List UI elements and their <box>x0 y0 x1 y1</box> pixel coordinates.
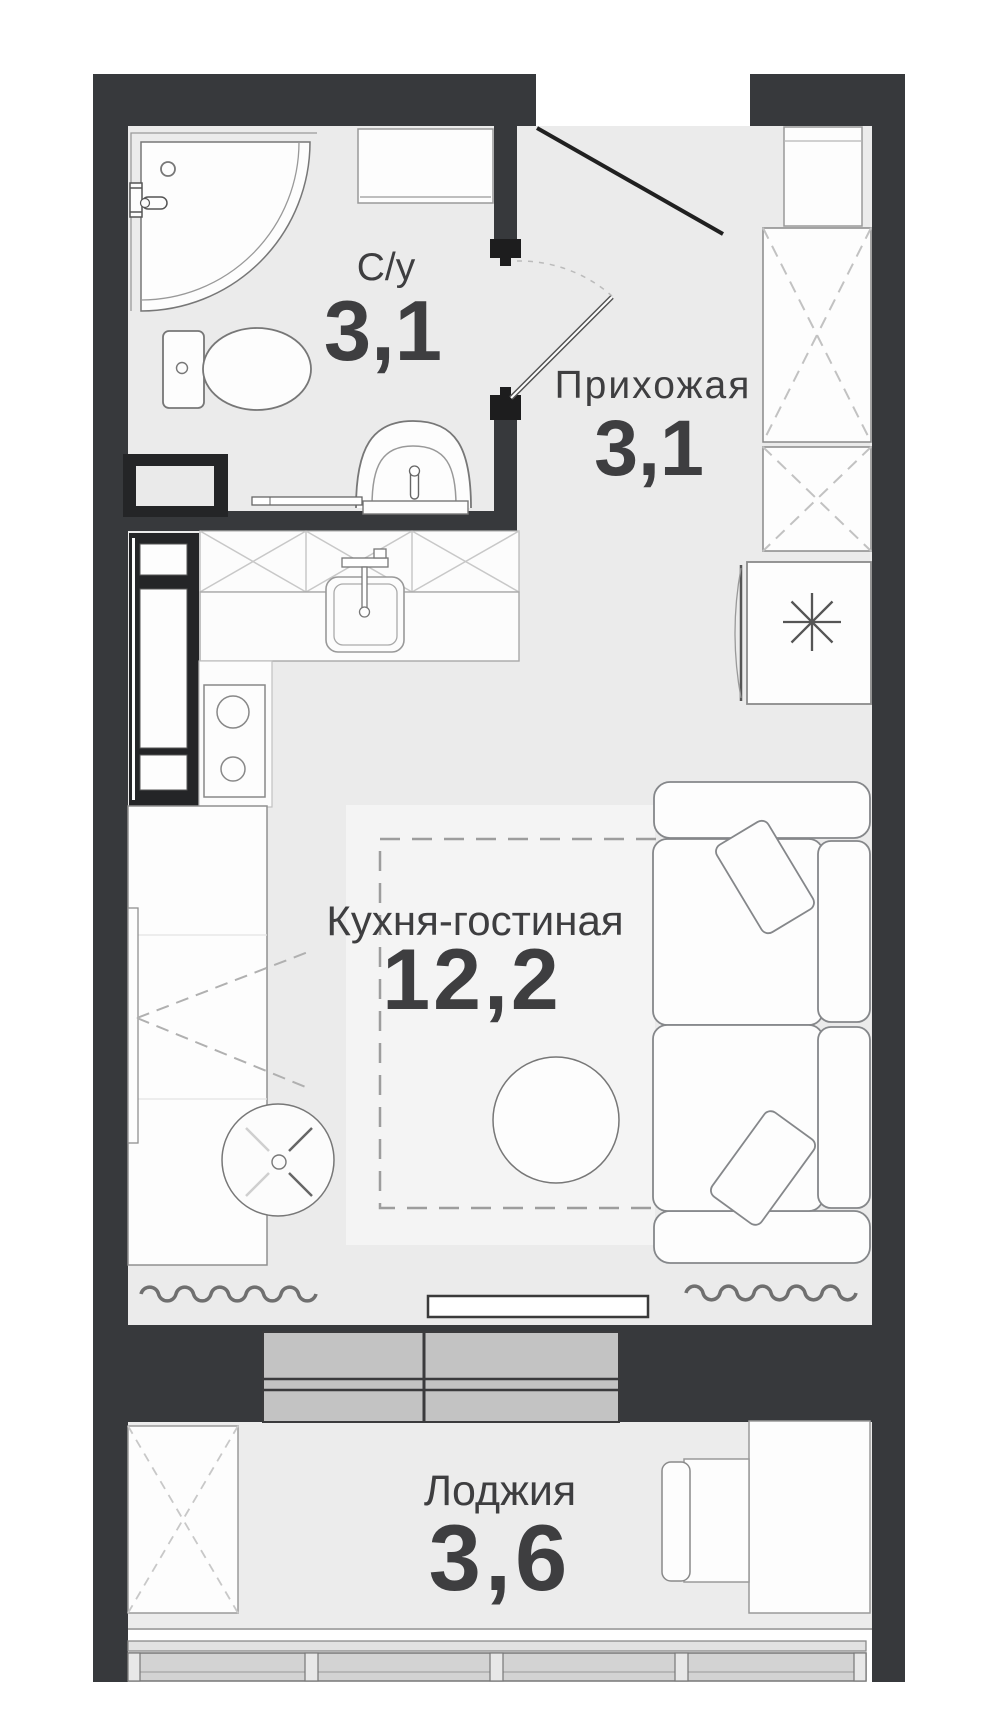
svg-text:3,1: 3,1 <box>324 284 442 379</box>
svg-text:3,6: 3,6 <box>429 1505 572 1610</box>
svg-text:3,1: 3,1 <box>594 403 704 492</box>
svg-text:С/у: С/у <box>357 246 416 289</box>
svg-text:Прихожая: Прихожая <box>555 364 752 407</box>
svg-text:12,2: 12,2 <box>382 932 561 1028</box>
